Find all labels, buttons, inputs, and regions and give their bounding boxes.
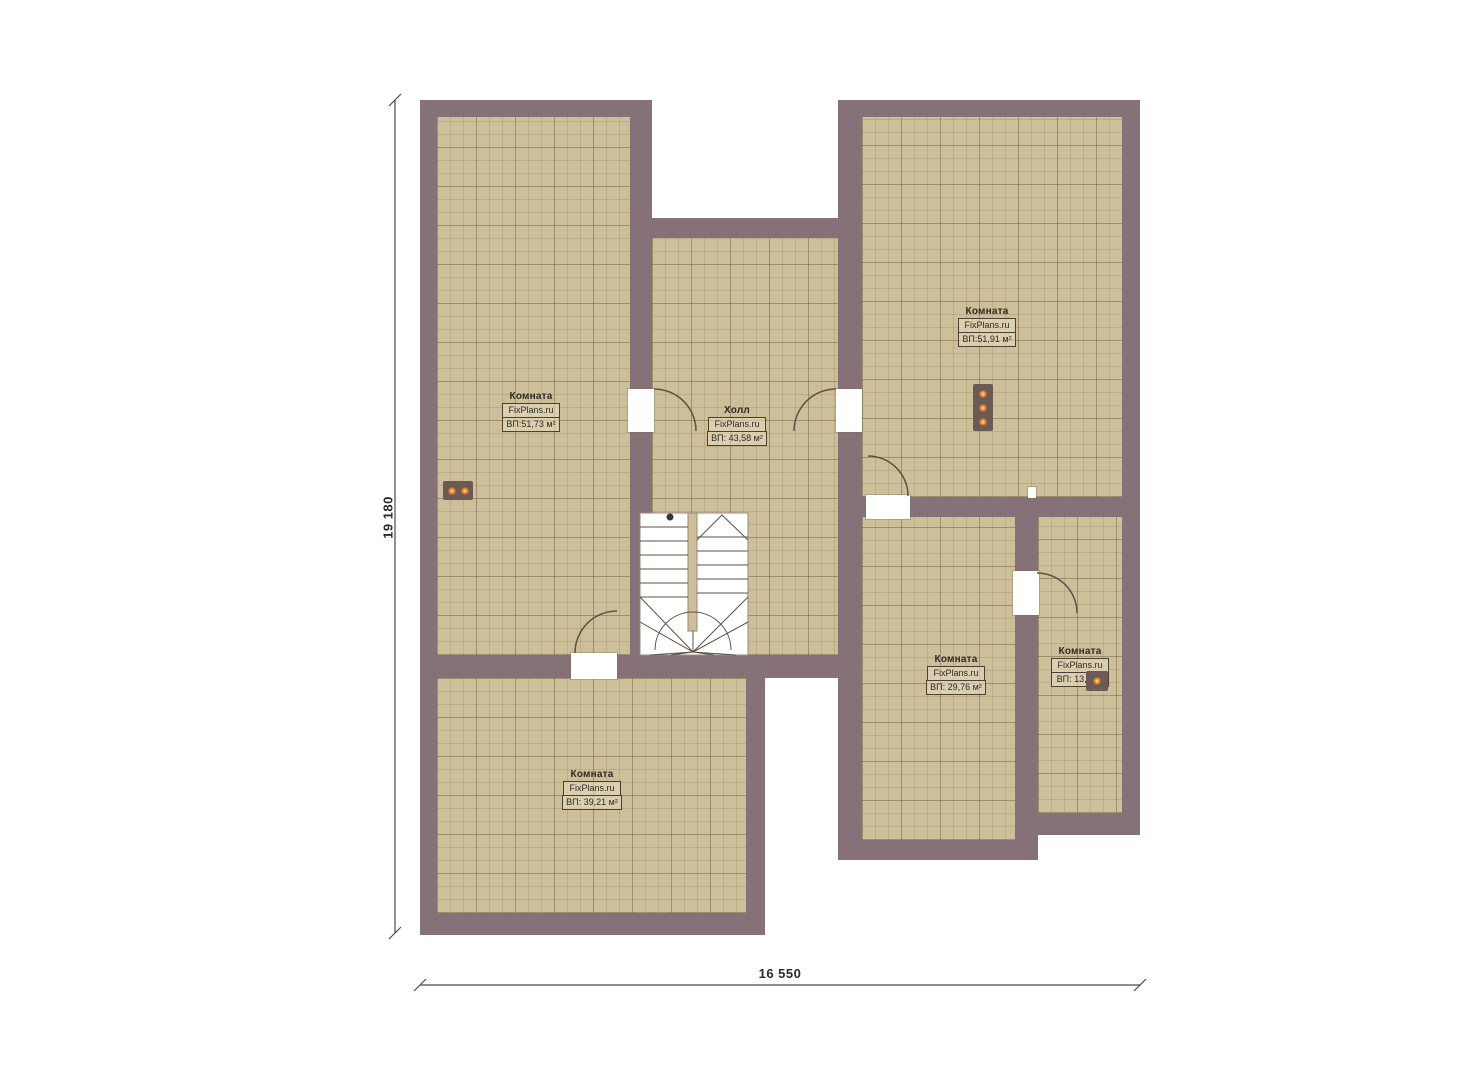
wall-right-outer <box>1122 100 1140 835</box>
room-name: Комната <box>1025 646 1135 657</box>
brand-label: FixPlans.ru <box>502 403 560 418</box>
socket-device-top-right-room <box>973 384 993 431</box>
room-label-bottom-middle: Комната FixPlans.ru ВП: 29,76 м² <box>901 654 1011 695</box>
room-name: Комната <box>476 391 586 402</box>
wall-bottom-middle <box>838 840 1038 860</box>
indicator-dot <box>979 418 987 426</box>
room-area: ВП:51,91 м² <box>958 332 1016 347</box>
dimension-height-label: 19 180 <box>381 483 396 553</box>
door-left-to-hall <box>628 389 654 432</box>
room-label-right-small: Комната FixPlans.ru ВП: 13,4 м² <box>1025 646 1135 687</box>
door-left-to-bottomleft <box>571 653 617 679</box>
floor-plan-canvas: Комната FixPlans.ru ВП:51,73 м² Холл Fix… <box>0 0 1474 1080</box>
indicator-dot <box>448 487 456 495</box>
brand-label: FixPlans.ru <box>563 781 621 796</box>
room-name: Комната <box>901 654 1011 665</box>
door-topright-to-bottom <box>866 495 910 519</box>
room-name: Комната <box>932 306 1042 317</box>
wall-top-left-block <box>420 100 652 117</box>
room-label-bottom-left: Комната FixPlans.ru ВП: 39,21 м² <box>537 769 647 810</box>
wall-notch <box>1028 487 1036 498</box>
door-hall-to-right <box>836 389 862 432</box>
brand-label: FixPlans.ru <box>927 666 985 681</box>
wall-bottomleft-right <box>746 655 765 935</box>
room-label-hall: Холл FixPlans.ru ВП: 43,58 м² <box>682 405 792 446</box>
brand-label: FixPlans.ru <box>708 417 766 432</box>
indicator-dot <box>1093 677 1101 685</box>
room-area: ВП: 29,76 м² <box>926 680 986 695</box>
room-area: ВП: 39,21 м² <box>562 795 622 810</box>
door-to-small-room <box>1013 571 1039 615</box>
floor-left-room <box>437 117 630 655</box>
room-name: Холл <box>682 405 792 416</box>
socket-device-small-room <box>1086 671 1108 691</box>
wall-top-right-block <box>838 100 1140 117</box>
wall-left-outer <box>420 100 437 935</box>
floor-hall <box>652 238 838 655</box>
room-name: Комната <box>537 769 647 780</box>
socket-device-left-wall <box>443 481 473 500</box>
dimension-width-label: 16 550 <box>745 966 815 981</box>
indicator-dot <box>461 487 469 495</box>
indicator-dot <box>979 390 987 398</box>
room-label-left: Комната FixPlans.ru ВП:51,73 м² <box>476 391 586 432</box>
wall-bottom-right <box>1015 813 1140 835</box>
indicator-dot <box>979 404 987 412</box>
room-label-top-right: Комната FixPlans.ru ВП:51,91 м² <box>932 306 1042 347</box>
room-area: ВП:51,73 м² <box>502 417 560 432</box>
wall-central-vertical <box>838 100 862 860</box>
wall-mid-horizontal <box>420 655 862 678</box>
room-area: ВП: 43,58 м² <box>707 431 767 446</box>
wall-bottom-left-block <box>420 913 765 935</box>
brand-label: FixPlans.ru <box>958 318 1016 333</box>
wall-hall-top <box>637 218 857 238</box>
wall-left-inner <box>630 100 652 655</box>
